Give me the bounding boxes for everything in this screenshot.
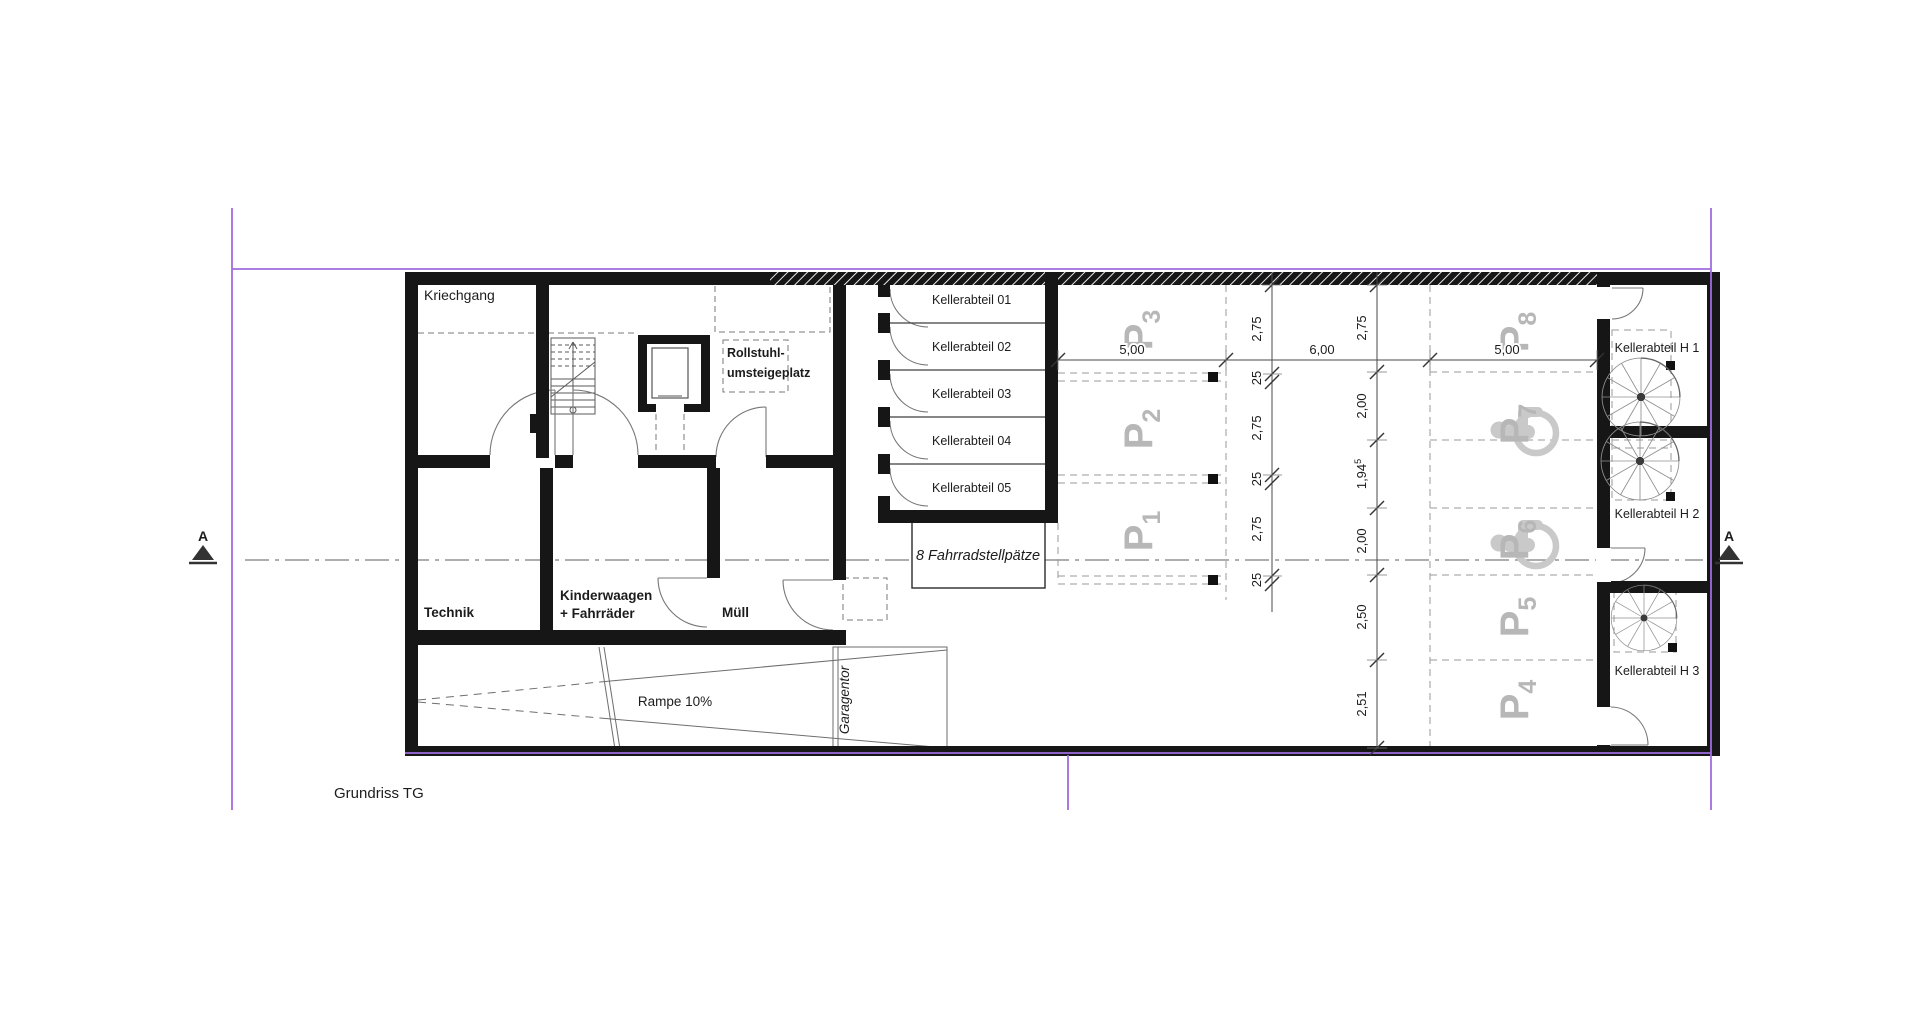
label-kellerabteil-05: Kellerabteil 05 xyxy=(932,481,1011,495)
dim-right-200-a: 2,00 xyxy=(1354,393,1369,418)
dim-5-00-left: 5,00 xyxy=(1119,342,1144,357)
dim-left-25-c: 25 xyxy=(1249,573,1264,587)
label-kellerabteil-h2: Kellerabteil H 2 xyxy=(1615,507,1700,521)
section-letter: A xyxy=(1724,528,1734,544)
dim-left-25-b: 25 xyxy=(1249,472,1264,486)
label-kellerabteil-01: Kellerabteil 01 xyxy=(932,293,1011,307)
label-kellerabteil-04: Kellerabteil 04 xyxy=(932,434,1011,448)
floor-plan-page: A A Kriechgang Rollstuhl- umsteigeplatz … xyxy=(0,0,1920,1020)
label-kellerabteil-h3: Kellerabteil H 3 xyxy=(1615,664,1700,678)
label-kriechgang: Kriechgang xyxy=(424,287,495,303)
label-garagentor: Garagentor xyxy=(837,665,852,734)
dim-5-00-right: 5,00 xyxy=(1494,342,1519,357)
label-kellerabteil-03: Kellerabteil 03 xyxy=(932,387,1011,401)
dim-right-275: 2,75 xyxy=(1354,315,1369,340)
label-rollstuhl-2: umsteigeplatz xyxy=(727,366,810,380)
label-kinderwagen-2: + Fahrräder xyxy=(560,606,635,621)
label-rampe: Rampe 10% xyxy=(638,694,712,709)
elevator xyxy=(638,335,710,413)
label-kellerabteil-02: Kellerabteil 02 xyxy=(932,340,1011,354)
label-kinderwagen-1: Kinderwaagen xyxy=(560,588,652,603)
dim-right-200-b: 2,00 xyxy=(1354,528,1369,553)
label-fahrradstellplaetze: 8 Fahrradstellpätze xyxy=(916,548,1040,564)
label-rollstuhl-1: Rollstuhl- xyxy=(727,346,785,360)
dim-left-275-a: 2,75 xyxy=(1249,316,1264,341)
label-muell: Müll xyxy=(722,605,749,620)
dim-left-275-b: 2,75 xyxy=(1249,415,1264,440)
section-letter: A xyxy=(198,528,208,544)
floor-plan-drawing: A A Kriechgang Rollstuhl- umsteigeplatz … xyxy=(0,0,1920,1020)
dim-6-00: 6,00 xyxy=(1309,342,1334,357)
dim-left-275-c: 2,75 xyxy=(1249,516,1264,541)
dim-right-250: 2,50 xyxy=(1354,604,1369,629)
dim-right-251: 2,51 xyxy=(1354,691,1369,716)
label-kellerabteil-h1: Kellerabteil H 1 xyxy=(1615,341,1700,355)
dim-left-25-a: 25 xyxy=(1249,371,1264,385)
drawing-title: Grundriss TG xyxy=(334,785,424,802)
label-technik: Technik xyxy=(424,605,475,620)
